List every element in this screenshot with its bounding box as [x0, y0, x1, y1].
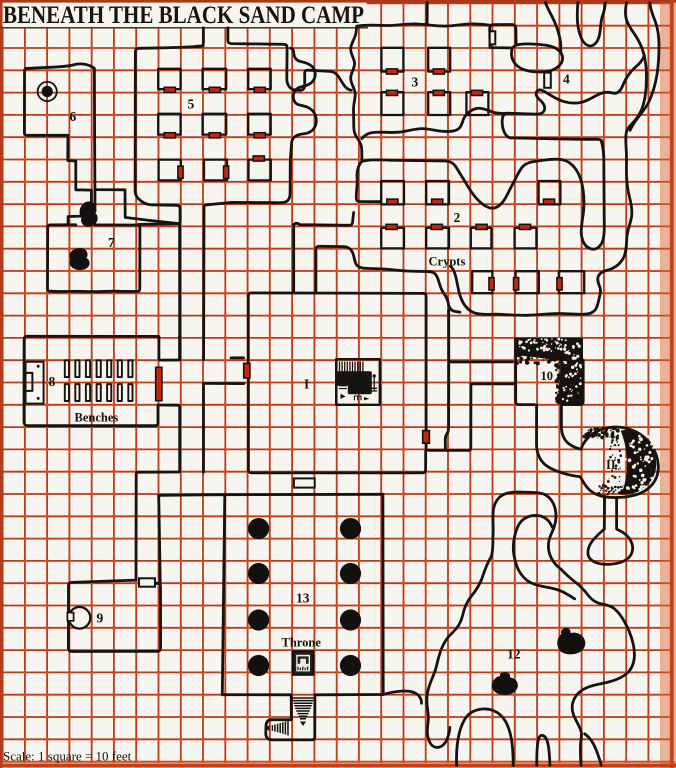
- svg-text:Throne: Throne: [282, 636, 322, 650]
- svg-text:2: 2: [454, 210, 461, 225]
- svg-text:3: 3: [412, 75, 419, 90]
- svg-text:I: I: [304, 377, 309, 392]
- svg-text:Scale: 1 square = 10 feet: Scale: 1 square = 10 feet: [3, 749, 132, 764]
- svg-text:5: 5: [188, 97, 195, 112]
- svg-text:4: 4: [563, 72, 570, 87]
- svg-text:12: 12: [507, 647, 521, 662]
- svg-text:8: 8: [49, 374, 56, 389]
- svg-text:6: 6: [70, 109, 77, 124]
- svg-text:9: 9: [97, 611, 104, 626]
- svg-text:Benches: Benches: [75, 411, 119, 425]
- svg-text:13: 13: [296, 591, 310, 606]
- svg-text:II: II: [606, 458, 616, 472]
- svg-text:7: 7: [108, 235, 115, 250]
- svg-text:Crypts: Crypts: [429, 255, 466, 269]
- svg-text:BENEATH THE BLACK SAND CAMP: BENEATH THE BLACK SAND CAMP: [3, 2, 364, 29]
- svg-text:10: 10: [541, 369, 554, 383]
